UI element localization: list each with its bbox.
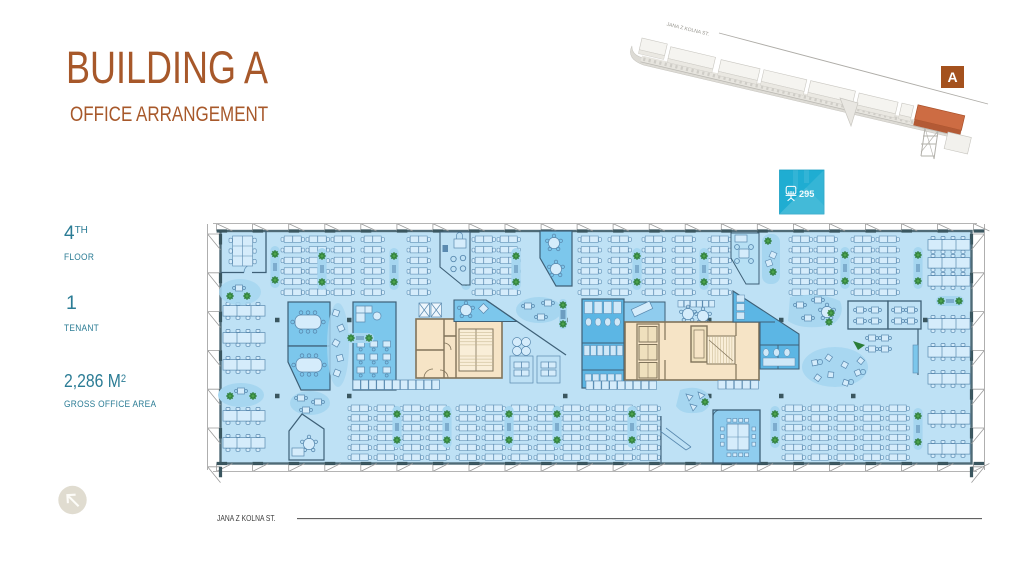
svg-text:JANA Z KOLNA ST.: JANA Z KOLNA ST. <box>666 22 710 38</box>
svg-text:295: 295 <box>799 189 814 199</box>
svg-text:A: A <box>947 69 957 85</box>
